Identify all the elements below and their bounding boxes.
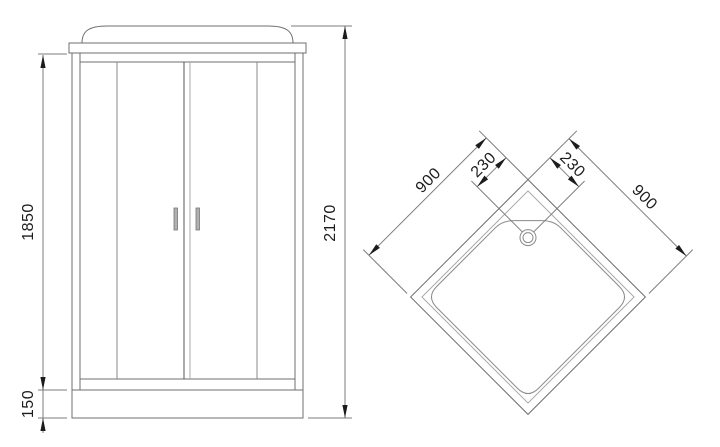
arrow-total-height-bottom: [342, 405, 347, 418]
door-handle-right: [196, 208, 200, 230]
cabin-dome-roof: [82, 26, 293, 43]
door-handle-left: [174, 208, 178, 230]
arrow-side-right-a: [567, 137, 580, 150]
arrow-total-height-top: [342, 26, 347, 39]
cabin-top-bar: [69, 43, 306, 53]
dim-label-total-height: 2170: [322, 204, 339, 242]
dim-label-door-height: 1850: [20, 203, 37, 241]
drain-inner-ring: [521, 231, 535, 245]
dim-line-side-left: [369, 138, 486, 255]
arrow-side-left-b: [475, 136, 488, 149]
tray-basin-outline: [426, 195, 630, 399]
arrow-tray-height-bottom: [40, 418, 45, 431]
dim-label-drain-left: 230: [468, 149, 500, 181]
dim-label-side-left: 900: [413, 165, 445, 197]
arrow-door-height-bottom: [40, 377, 45, 390]
ext-line-left-vertex: [363, 250, 407, 294]
arrow-side-right-b: [675, 245, 688, 258]
ext-line-drain-right: [534, 181, 585, 232]
cabin-body-frame: [72, 53, 303, 390]
arrow-door-height-top: [40, 55, 45, 68]
dim-label-drain-right: 230: [556, 149, 588, 181]
tray-outer-edge: [411, 180, 646, 415]
shower-tray-front: [72, 390, 303, 418]
technical-drawing: 1850 150 2170: [0, 0, 720, 447]
dim-label-tray-height: 150: [20, 390, 37, 418]
tray-inner-rim: [422, 191, 634, 403]
ext-line-drain-left: [471, 181, 522, 232]
arrow-side-left-a: [367, 244, 380, 257]
technical-drawing-canvas: 1850 150 2170: [0, 0, 720, 447]
top-plan-view: 900 230 900 230: [355, 69, 700, 414]
front-elevation-view: 1850 150 2170: [20, 26, 352, 433]
dim-label-side-right: 900: [628, 182, 660, 214]
